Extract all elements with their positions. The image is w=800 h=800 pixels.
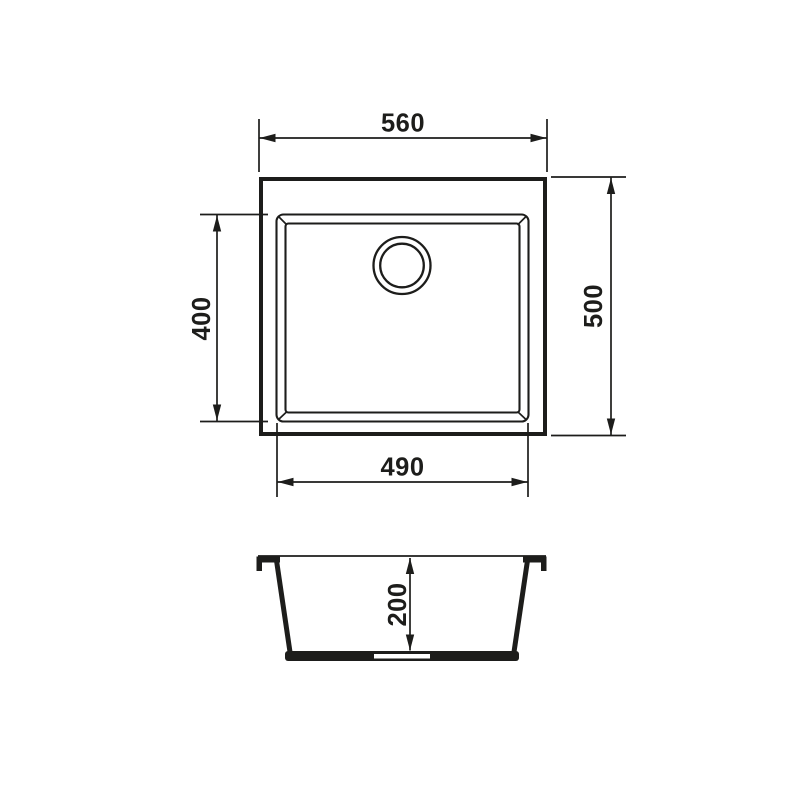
drain-inner-circle: [380, 244, 424, 288]
drain-outer-circle: [374, 237, 431, 294]
dimension-label-bottom-width: 490: [380, 454, 424, 482]
basin-corner-chamfer-top-right: [518, 217, 527, 226]
sink-technical-drawing: 560 400 500 490: [0, 0, 800, 800]
basin-inner-edge: [286, 224, 520, 413]
dimension-label-left-height: 400: [188, 296, 216, 340]
dimension-section-depth: 200: [384, 558, 414, 651]
dimension-right-height: 500: [551, 177, 626, 436]
arrowhead-up-icon: [213, 216, 221, 232]
bowl-wall-right: [514, 561, 528, 653]
section-view: 200: [257, 556, 547, 661]
dimension-label-section-depth: 200: [384, 582, 412, 626]
arrowhead-down-icon: [406, 635, 414, 651]
dimension-label-top-width: 560: [381, 110, 425, 138]
arrowhead-up-icon: [406, 558, 414, 574]
arrowhead-down-icon: [213, 405, 221, 421]
basin-corner-chamfer-top-left: [279, 217, 288, 226]
basin-outer-edge: [277, 215, 529, 422]
arrowhead-up-icon: [607, 178, 615, 194]
arrowhead-right-icon: [531, 134, 547, 142]
drain-outlet-slot: [374, 654, 430, 659]
basin-corner-chamfer-bottom-left: [279, 412, 288, 420]
bowl-wall-left: [277, 561, 291, 653]
basin-corner-chamfer-bottom-right: [518, 412, 527, 420]
dimension-label-right-height: 500: [580, 284, 608, 328]
drawing-canvas: 560 400 500 490: [0, 0, 800, 800]
arrowhead-left-icon: [278, 478, 294, 486]
plan-view: 560 400 500 490: [188, 110, 626, 498]
sink-outer-edge: [261, 179, 545, 434]
dimension-left-height: 400: [188, 215, 268, 422]
arrowhead-down-icon: [607, 419, 615, 435]
arrowhead-right-icon: [512, 478, 528, 486]
arrowhead-left-icon: [260, 134, 276, 142]
dimension-top-width: 560: [259, 110, 547, 173]
